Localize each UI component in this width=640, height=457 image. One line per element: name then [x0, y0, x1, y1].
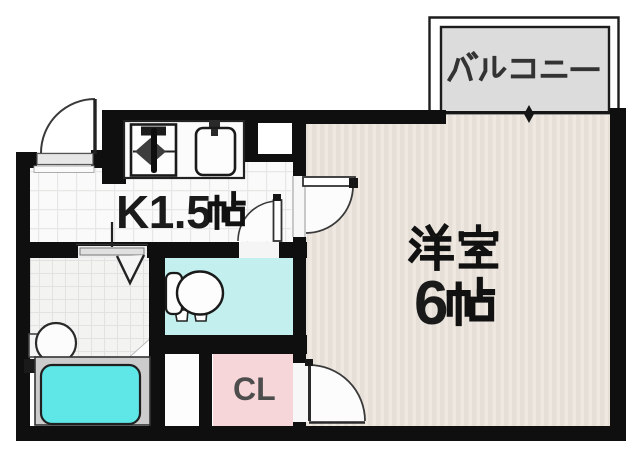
svg-text:K1.5: K1.5: [116, 186, 211, 238]
svg-text:CL: CL: [233, 371, 276, 407]
svg-text:6: 6: [414, 269, 448, 338]
